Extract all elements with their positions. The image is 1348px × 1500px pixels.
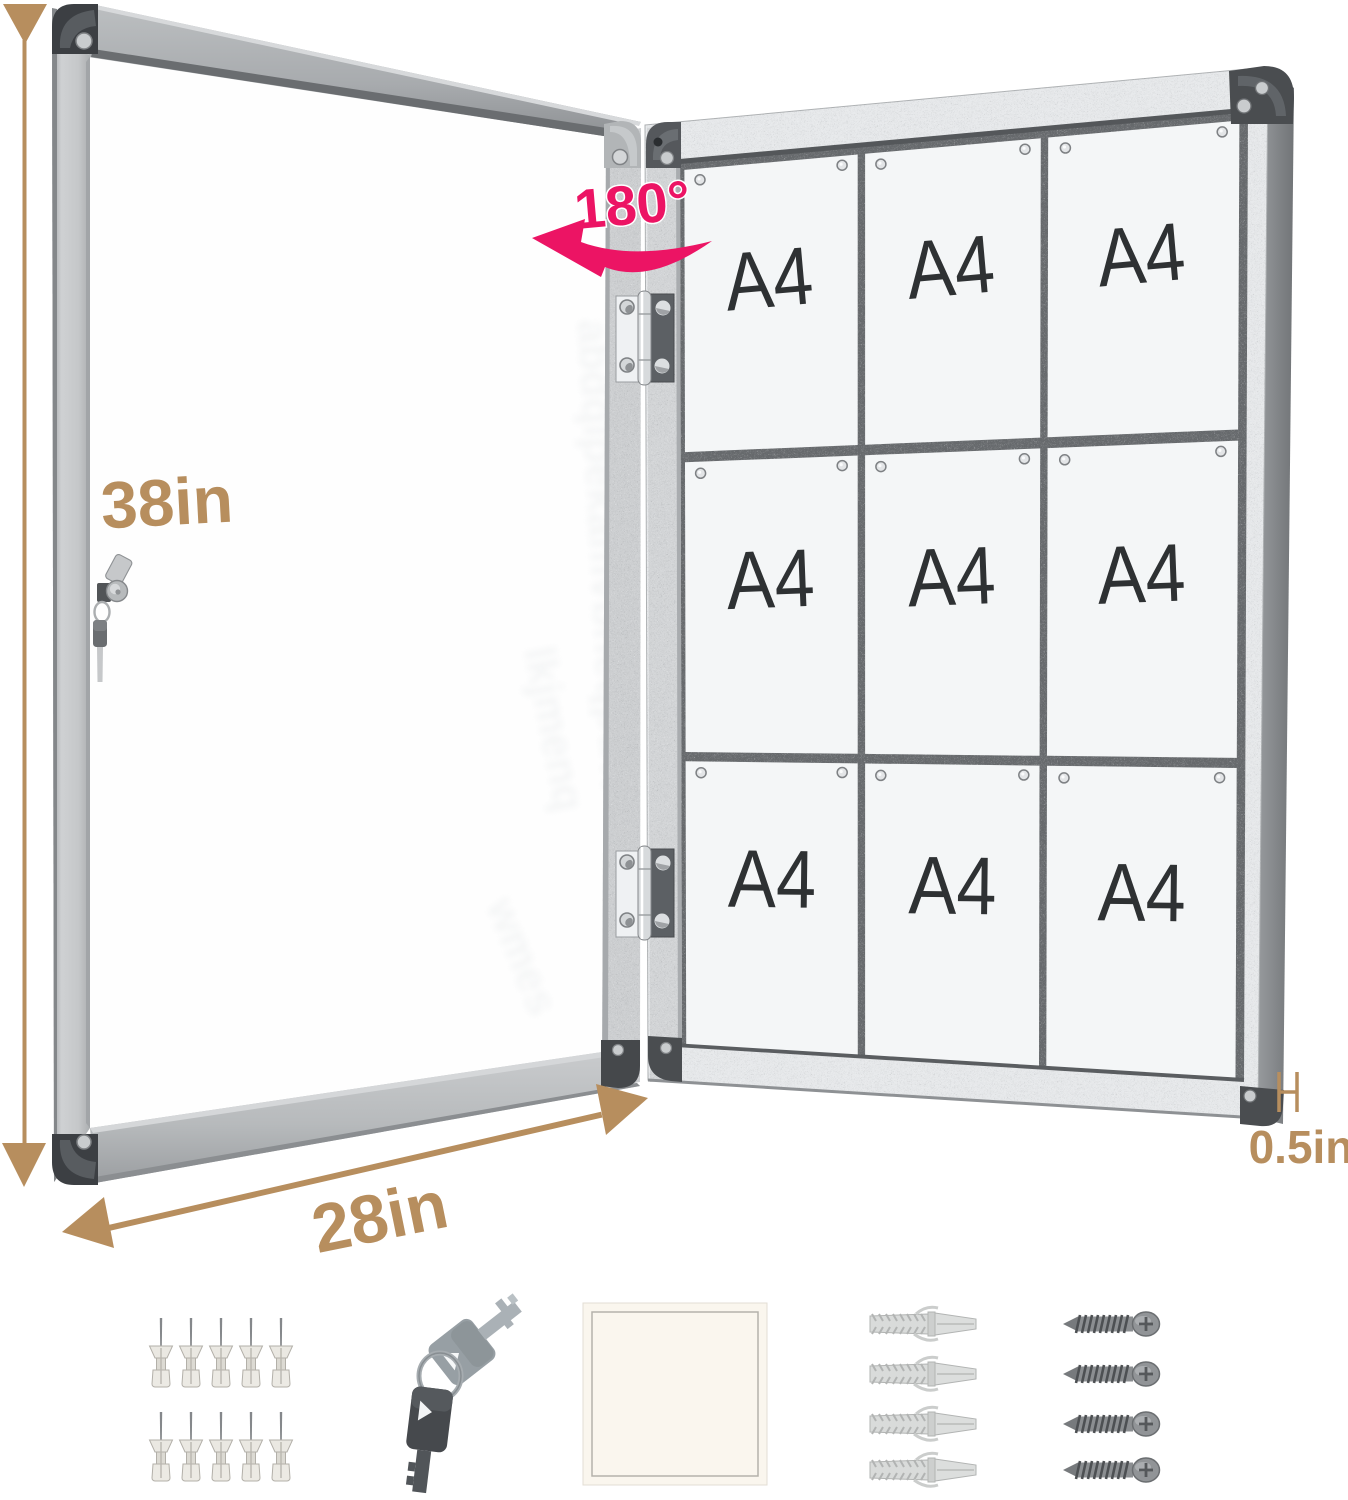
svg-text:A4: A4 [721, 230, 817, 328]
svg-text:A4: A4 [1097, 847, 1186, 939]
svg-text:A4: A4 [903, 218, 999, 316]
svg-text:A4: A4 [728, 834, 817, 926]
svg-text:38in: 38in [99, 462, 235, 543]
svg-text:180°: 180° [572, 168, 693, 241]
svg-text:A4: A4 [725, 533, 817, 627]
svg-text:A4: A4 [908, 840, 997, 932]
svg-text:A4: A4 [906, 530, 997, 624]
svg-text:0.5in: 0.5in [1249, 1121, 1348, 1173]
svg-text:A4: A4 [1093, 206, 1189, 304]
svg-text:A4: A4 [1096, 528, 1188, 622]
